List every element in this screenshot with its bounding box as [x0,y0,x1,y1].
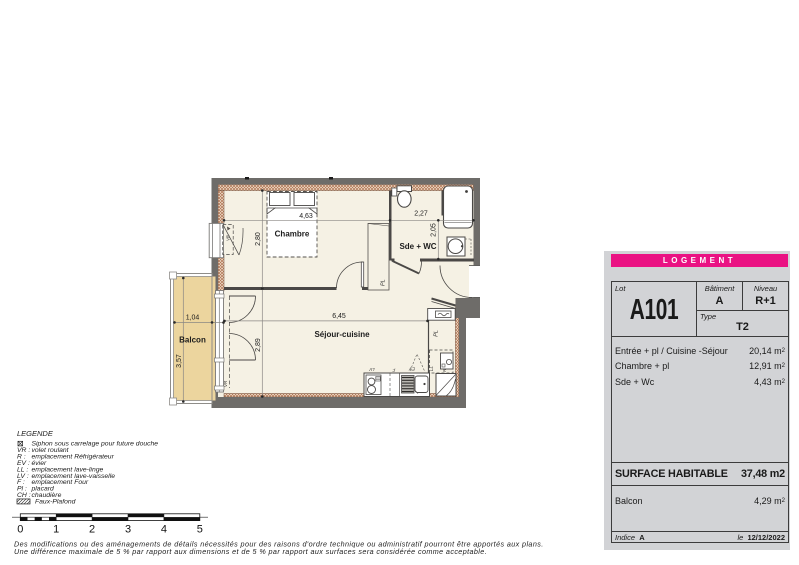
svg-text:1,04: 1,04 [186,315,200,322]
svg-text:6,45: 6,45 [332,313,346,320]
svg-text:2,80: 2,80 [255,232,262,246]
svg-text:LL: LL [429,365,434,371]
svg-text:Balcon: Balcon [179,336,206,345]
svg-text:CH :: CH : [17,492,31,499]
svg-text:Une différence maximale de 5 %: Une différence maximale de 5 % par rappo… [14,547,487,556]
svg-text:VR: VR [223,380,228,387]
svg-text:3,57: 3,57 [176,354,183,368]
svg-text:2,05: 2,05 [431,223,438,237]
svg-text:VR: VR [226,235,231,241]
svg-text:PL: PL [434,330,440,337]
svg-text:5: 5 [197,524,203,536]
svg-text:Faux-Plafond: Faux-Plafond [35,499,76,506]
svg-text:F: F [392,368,395,373]
svg-text:3: 3 [125,524,131,536]
svg-text:LEGENDE: LEGENDE [17,429,54,438]
svg-text:Séjour-cuisine: Séjour-cuisine [314,330,370,339]
svg-text:2: 2 [89,524,95,536]
svg-text:Sde + WC: Sde + WC [399,242,436,251]
svg-text:Chambre: Chambre [275,230,310,239]
svg-text:0: 0 [17,524,23,536]
svg-text:2,27: 2,27 [414,211,428,218]
svg-text:4: 4 [161,524,167,536]
svg-text:2,89: 2,89 [255,338,262,352]
svg-text:4,63: 4,63 [299,213,313,220]
svg-text:PL: PL [381,279,387,286]
svg-text:1: 1 [53,524,59,536]
